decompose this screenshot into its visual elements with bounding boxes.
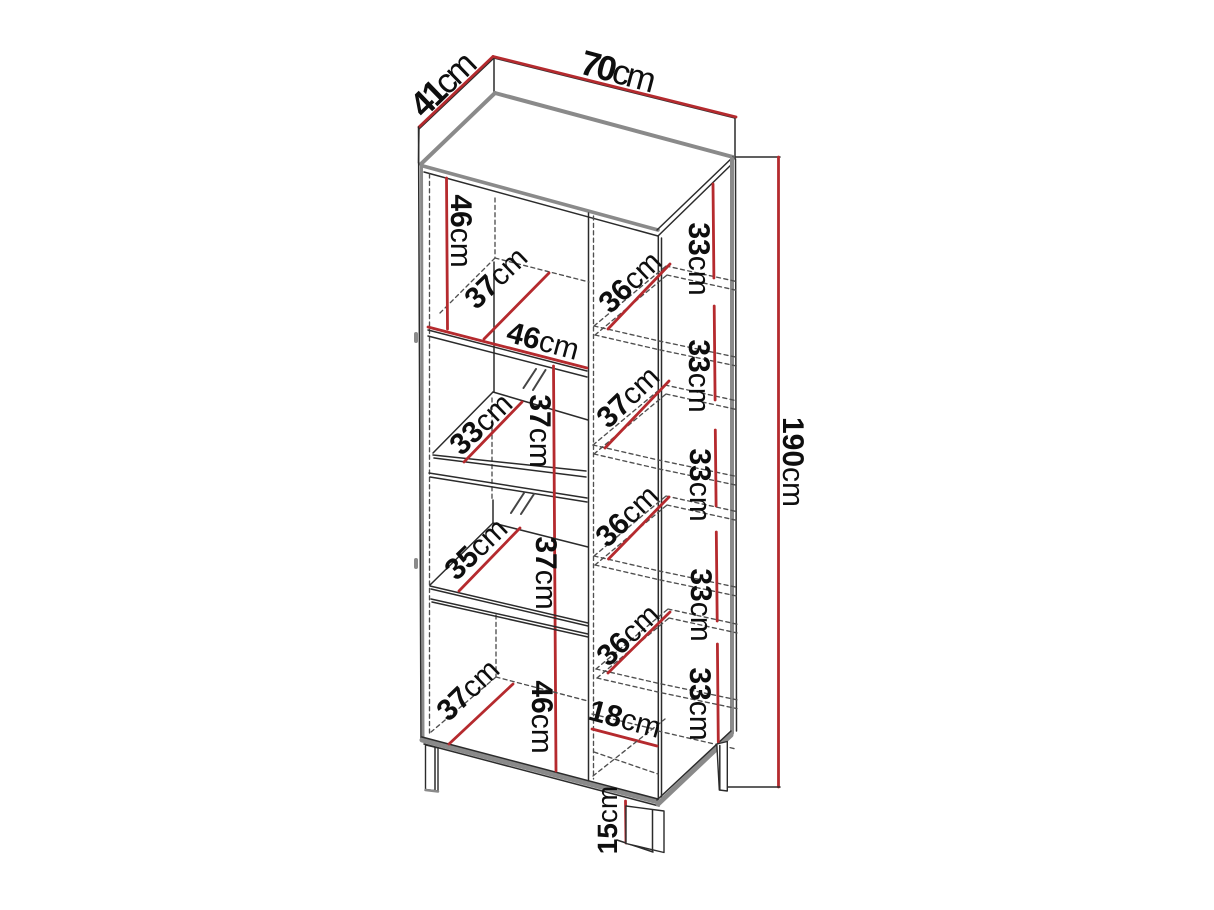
svg-text:37cm: 37cm: [524, 394, 557, 467]
svg-text:33cm: 33cm: [683, 339, 716, 412]
svg-text:37cm: 37cm: [530, 536, 563, 609]
svg-text:70cm: 70cm: [576, 43, 658, 100]
svg-text:36cm: 36cm: [590, 598, 666, 673]
svg-text:41cm: 41cm: [402, 45, 483, 125]
svg-text:33cm: 33cm: [684, 667, 717, 740]
svg-text:37cm: 37cm: [430, 653, 506, 728]
svg-text:190cm: 190cm: [777, 417, 810, 507]
svg-text:33cm: 33cm: [685, 568, 718, 641]
svg-text:33cm: 33cm: [443, 387, 519, 462]
svg-text:36cm: 36cm: [592, 245, 668, 320]
svg-text:33cm: 33cm: [683, 222, 716, 295]
svg-text:15cm: 15cm: [592, 786, 623, 854]
svg-text:46cm: 46cm: [445, 194, 478, 267]
svg-text:33cm: 33cm: [684, 448, 717, 521]
svg-text:46cm: 46cm: [526, 680, 559, 753]
